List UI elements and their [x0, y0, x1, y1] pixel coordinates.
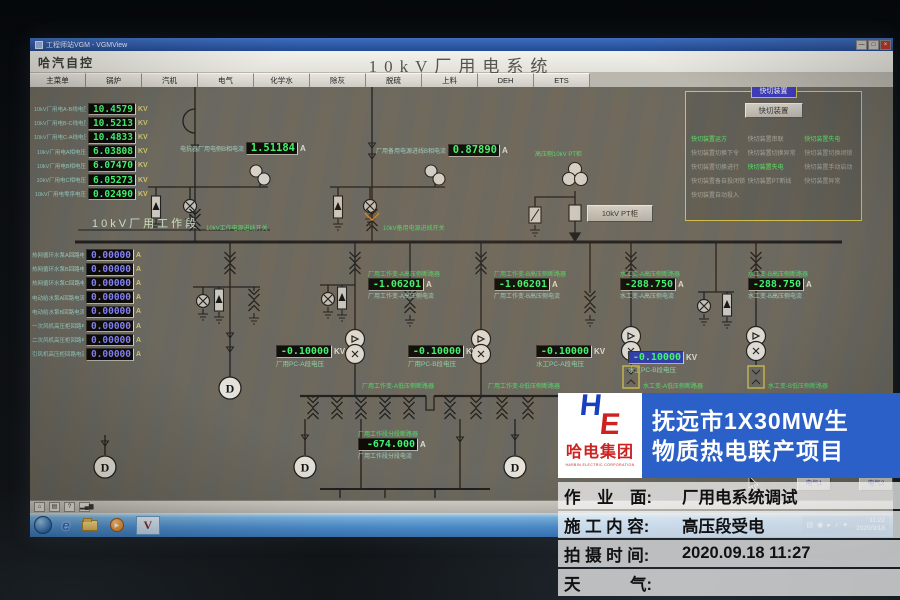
current-unit: A [136, 337, 141, 344]
toolstrip-icon[interactable]: ▂▄▆ [79, 502, 90, 512]
toolstrip-icon[interactable]: ▤ [49, 502, 60, 512]
current-row: 热网循环水泵A回路电流 0.00000 A [32, 249, 141, 261]
current-label: 热网循环水泵A回路电流 [32, 251, 84, 259]
breaker-label: 水工变-B高压侧断路器 [748, 269, 812, 278]
status-item: 快切装置运方 [691, 134, 746, 143]
current-row: 二次风机高压柜回路电流 0.00000 A [32, 334, 141, 346]
current-value: 0.00000 [86, 263, 134, 276]
status-item: 快切装置切换异常 [748, 148, 803, 157]
menu-tab[interactable]: DEH [478, 73, 534, 87]
current-label: 厂用工作段分段电流 [358, 451, 426, 460]
voltage-label: 10kV厂用电A相电压 [34, 148, 86, 156]
current-value: 0.00000 [86, 320, 134, 333]
readout-value: -674.000 [358, 438, 418, 451]
menu-tab[interactable]: 主菜单 [30, 73, 86, 87]
menu-tab[interactable]: 化学水 [254, 73, 310, 87]
maximize-button[interactable]: □ [868, 40, 879, 50]
status-item: 快切装置切换进行 [691, 162, 746, 171]
current-row: 电动给水泵B回路电流 0.00000 A [32, 306, 141, 318]
tx-b-low-label: 厂用工作变-B低压侧断路器 [488, 381, 560, 390]
water-b-low-label: 水工变-B低压侧断路器 [768, 381, 828, 390]
readout-value: -288.750 [620, 278, 676, 291]
voltage-value: 10.5213 [88, 117, 136, 130]
menu-tab[interactable]: 电气 [198, 73, 254, 87]
readout-value: -1.06201 [494, 278, 550, 291]
info-label: 作 业 面: [564, 484, 682, 508]
vgm-taskbar-button[interactable]: V [136, 516, 160, 535]
current-label: 水工变-A高压侧电流 [620, 291, 684, 300]
minimize-button[interactable]: — [856, 40, 867, 50]
readout-value: -0.10000 [408, 345, 464, 358]
window-icon [35, 41, 43, 49]
readout-label: 厂用备用电源进线B相电流 [376, 146, 446, 155]
readout-unit: KV [594, 347, 605, 356]
voltage-value: 6.03808 [88, 145, 136, 158]
info-label: 拍 摄 时 间: [564, 542, 682, 566]
current-row: 热网循环水泵C回路电流 0.00000 A [32, 277, 141, 289]
water-b-readout: 水工变-B高压侧断路器 -288.750A 水工变-B高压侧电流 [748, 269, 812, 300]
media-player-icon[interactable]: ▶ [110, 518, 124, 532]
voltage-label: 10kV厂用电A-B线电压 [34, 105, 86, 113]
voltage-unit: KV [138, 148, 148, 155]
current-unit: A [136, 252, 141, 259]
voltage-value: 10.4579 [88, 103, 136, 116]
toolstrip-icon[interactable]: ⌂ [34, 502, 45, 512]
current-unit: A [136, 323, 141, 330]
window-titlebar: 工程师站VGM - VGMView — □ × [30, 38, 893, 51]
incoming-standby-label: 10kV备用电源进线开关 [383, 223, 445, 232]
current-label: 厂用工作变-A高压侧电流 [368, 291, 440, 300]
current-row: 一次风机高压柜回路电流 0.00000 A [32, 320, 141, 332]
app-header: 哈汽自控 10kV厂用电系统 [30, 51, 893, 73]
menu-tab[interactable]: ETS [534, 73, 590, 87]
voltage-label: 10kV厂用电B-C线电压 [34, 119, 86, 127]
current-label: 热网循环水泵C回路电流 [32, 279, 84, 287]
current-unit: A [136, 351, 141, 358]
info-label: 施 工 内 容: [564, 513, 682, 537]
bus-section-readout: 厂用工作段分段断路器 -674.000A 厂用工作段分段电流 [358, 429, 426, 460]
menu-bar: 主菜单锅炉汽机电气化学水除灰脱硫上料DEHETS [30, 73, 893, 87]
status-grid: 快切装置运方快切装置串联快切装置失电快切装置切换下令快切装置切换异常快切装置切换… [691, 134, 859, 199]
voltage-unit: KV [138, 134, 148, 141]
voltage-label: 水工PC-B段电压 [628, 364, 697, 374]
menu-tab[interactable]: 锅炉 [86, 73, 142, 87]
readout-unit: KV [466, 347, 477, 356]
info-row: 天 气: [558, 569, 900, 596]
info-value: 高压段受电 [682, 513, 765, 537]
fast-transfer-panel: 快切装置 快切装置 快切装置运方快切装置串联快切装置失电快切装置切换下令快切装置… [685, 91, 862, 221]
voltage-row: 10kV厂用电B-C线电压 10.5213 KV [34, 117, 148, 129]
bus-label: 10kV厂用工作段 [92, 215, 199, 231]
logo-h: H [578, 390, 603, 422]
voltage-row: 10kV厂用电C-A线电压 10.4833 KV [34, 131, 148, 143]
menu-tab[interactable]: 除灰 [310, 73, 366, 87]
pc-b-voltage: -0.10000KV 厂用PC-B段电压 [408, 345, 477, 368]
current-label: 一次风机高压柜回路电流 [32, 322, 84, 330]
tx-b-readout: 厂用工作变-B高压侧断路器 -1.06201A 厂用工作变-B高压侧电流 [494, 269, 566, 300]
water-a-readout: 水工变-A高压侧断路器 -288.750A 水工变-A高压侧电流 [620, 269, 684, 300]
readout-unit: KV [686, 353, 697, 362]
water-pc-b-voltage: -0.10000KV 水工PC-B段电压 [628, 351, 697, 374]
readout-label: 电抗器厂用电侧B相电流 [180, 144, 244, 153]
status-item: 快切装置失电 [804, 134, 859, 143]
status-item: 快切装置切换下令 [691, 148, 746, 157]
he-logo-icon: H E [579, 396, 621, 436]
current-value: 0.00000 [86, 277, 134, 290]
tx-a-low-label: 厂用工作变-A低压侧断路器 [362, 381, 434, 390]
readout-unit: A [502, 146, 508, 155]
readout-value: 1.51184 [246, 142, 298, 155]
watermark-info-rows: 作 业 面: 厂用电系统调试 施 工 内 容: 高压段受电 拍 摄 时 间: 2… [558, 482, 900, 596]
current-unit: A [136, 266, 141, 273]
current-unit: A [136, 280, 141, 287]
status-item: 快切装置手动启动 [804, 162, 859, 171]
company-logo: H E 哈电集团 HARBIN ELECTRIC CORPORATION [558, 393, 642, 478]
project-line1: 抚远市1X30MW生 [652, 406, 900, 436]
readout-unit: A [552, 280, 558, 289]
info-row: 拍 摄 时 间: 2020.09.18 11:27 [558, 540, 900, 567]
breaker-label: 水工变-A高压侧断路器 [620, 269, 684, 278]
current-label: 二次风机高压柜回路电流 [32, 336, 84, 344]
current-label: 水工变-B高压侧电流 [748, 291, 812, 300]
folder-icon[interactable] [82, 520, 98, 531]
readout-unit: A [426, 280, 432, 289]
status-item: 快切装置异常 [804, 176, 859, 185]
voltage-value: 10.4833 [88, 131, 136, 144]
current-value: 0.00000 [86, 334, 134, 347]
menu-tab[interactable]: 脱硫 [366, 73, 422, 87]
window-title: 工程师站VGM - VGMView [46, 40, 127, 50]
photo-of-monitor: 工程师站VGM - VGMView — □ × 哈汽自控 10kV厂用电系统 主… [0, 0, 900, 600]
voltage-readout-list: 10kV厂用电A-B线电压 10.4579 KV 10kV厂用电B-C线电压 1… [34, 103, 148, 202]
current-value: 0.00000 [86, 348, 134, 361]
voltage-value: 6.07470 [88, 160, 136, 173]
current-value: 0.00000 [86, 249, 134, 262]
status-item: 快切装置PT断线 [748, 176, 803, 185]
voltage-label: 厂用PC-A段电压 [276, 358, 345, 368]
start-button-icon[interactable] [34, 516, 52, 534]
readout-unit: A [420, 440, 426, 449]
voltage-row: 10kV厂用电零序电压 0.02490 KV [34, 188, 148, 200]
menu-tab[interactable]: 汽机 [142, 73, 198, 87]
voltage-row: 10kV厂用电B相电压 6.07470 KV [34, 160, 148, 172]
voltage-unit: KV [138, 120, 148, 127]
current-label: 引风机高压柜回路电流 [32, 350, 84, 358]
current-row: 电动给水泵A回路电流 0.00000 A [32, 292, 141, 304]
info-value: 2020.09.18 11:27 [682, 544, 810, 563]
breaker-label: 厂用工作变-A高压侧断路器 [368, 269, 440, 278]
status-item: 快切装置串联 [748, 134, 803, 143]
reactor-current-readout: 电抗器厂用电侧B相电流 1.51184 A [180, 142, 306, 155]
readout-unit: A [300, 144, 306, 153]
voltage-label: 10kV厂用电C相电压 [34, 176, 86, 184]
info-value: 厂用电系统调试 [682, 484, 798, 508]
voltage-value: 6.05273 [88, 174, 136, 187]
incoming-work-label: 10kV工作电源进线开关 [206, 223, 268, 232]
fast-transfer-button[interactable]: 快切装置 [745, 103, 803, 118]
voltage-label: 10kV厂用电B相电压 [34, 162, 86, 170]
readout-value: -0.10000 [536, 345, 592, 358]
current-unit: A [136, 294, 141, 301]
water-pc-a-voltage: -0.10000KV 水工PC-A段电压 [536, 345, 605, 368]
current-readout-list: 热网循环水泵A回路电流 0.00000 A 热网循环水泵B回路电流 0.0000… [32, 249, 141, 363]
status-item: 快切装置失电 [748, 162, 803, 171]
company-name: 哈电集团 [566, 438, 634, 462]
readout-value: -288.750 [748, 278, 804, 291]
company-name-en: HARBIN ELECTRIC CORPORATION [565, 463, 634, 467]
pc-a-voltage: -0.10000KV 厂用PC-A段电压 [276, 345, 345, 368]
readout-value: -0.10000 [276, 345, 332, 358]
pt-label: 高压侧10kV PT柜 [535, 149, 582, 158]
info-row: 作 业 面: 厂用电系统调试 [558, 482, 900, 509]
current-unit: A [136, 308, 141, 315]
readout-unit: A [678, 280, 684, 289]
voltage-row: 10kV厂用电A相电压 6.03808 KV [34, 146, 148, 158]
voltage-label: 厂用PC-B段电压 [408, 358, 477, 368]
voltage-label: 10kV厂用电零序电压 [34, 190, 86, 198]
voltage-unit: KV [138, 106, 148, 113]
info-label: 天 气: [564, 571, 682, 595]
current-row: 热网循环水泵B回路电流 0.00000 A [32, 263, 141, 275]
breaker-label: 厂用工作变-B高压侧断路器 [494, 269, 566, 278]
readout-value: 0.87890 [448, 144, 500, 157]
project-line2: 物质热电联产项目 [652, 436, 900, 466]
voltage-row: 10kV厂用电C相电压 6.05273 KV [34, 174, 148, 186]
menu-tab[interactable]: 上料 [422, 73, 478, 87]
logo-e: E [598, 409, 621, 441]
readout-unit: A [806, 280, 812, 289]
current-label: 电动给水泵A回路电流 [32, 294, 84, 302]
voltage-unit: KV [138, 191, 148, 198]
water-a-low-label: 水工变-A低压侧断路器 [643, 381, 703, 390]
pt-cabinet-button[interactable]: 10kV PT柜 [587, 205, 653, 222]
voltage-row: 10kV厂用电A-B线电压 10.4579 KV [34, 103, 148, 115]
breaker-label: 厂用工作段分段断路器 [358, 429, 426, 438]
standby-current-readout: 厂用备用电源进线B相电流 0.87890 A [376, 144, 508, 157]
current-label: 热网循环水泵B回路电流 [32, 265, 84, 273]
voltage-label: 10kV厂用电C-A线电压 [34, 133, 86, 141]
info-row: 施 工 内 容: 高压段受电 [558, 511, 900, 538]
current-label: 电动给水泵B回路电流 [32, 308, 84, 316]
toolstrip-icon[interactable]: ? [64, 502, 75, 512]
voltage-unit: KV [138, 177, 148, 184]
voltage-unit: KV [138, 162, 148, 169]
current-value: 0.00000 [86, 291, 134, 304]
current-value: 0.00000 [86, 306, 134, 319]
status-item: 快切装置备自投闭锁 [691, 176, 746, 185]
tx-a-readout: 厂用工作变-A高压侧断路器 -1.06201A 厂用工作变-A高压侧电流 [368, 269, 440, 300]
panel-title: 快切装置 [751, 87, 797, 98]
watermark-overlay: H E 哈电集团 HARBIN ELECTRIC CORPORATION 抚远市… [558, 390, 900, 600]
readout-value: -1.06201 [368, 278, 424, 291]
current-label: 厂用工作变-B高压侧电流 [494, 291, 566, 300]
project-title: 抚远市1X30MW生 物质热电联产项目 [642, 393, 900, 478]
status-item: 快切装置自动投入 [691, 190, 746, 199]
current-row: 引风机高压柜回路电流 0.00000 A [32, 348, 141, 360]
readout-unit: KV [334, 347, 345, 356]
voltage-value: 0.02490 [88, 188, 136, 201]
close-button[interactable]: × [880, 40, 891, 50]
status-item: 快切装置切换闭锁 [804, 148, 859, 157]
readout-value: -0.10000 [628, 351, 684, 364]
internet-explorer-icon[interactable]: e [62, 517, 70, 533]
voltage-label: 水工PC-A段电压 [536, 358, 605, 368]
